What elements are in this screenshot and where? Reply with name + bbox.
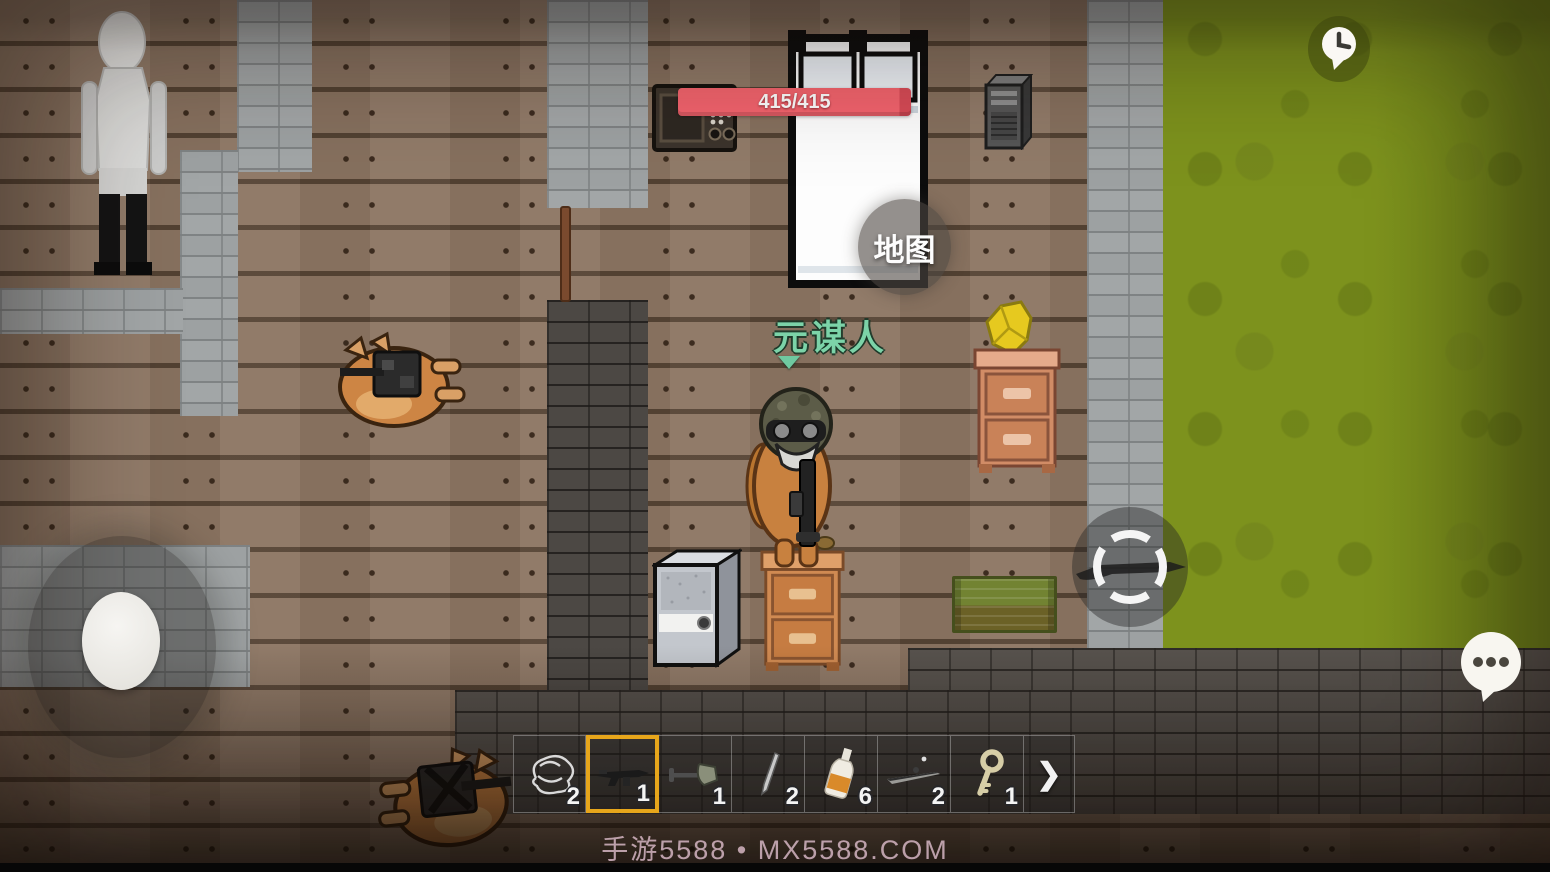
game-scene: 元谋人 415/415 地图 — [0, 0, 1550, 872]
player-name: 元谋人 — [680, 310, 980, 361]
map-button[interactable]: 地图 — [858, 199, 951, 295]
wall-left-horizontal — [0, 288, 183, 334]
ammo-crate — [952, 576, 1057, 633]
hotbar-slot-knife[interactable]: 2 — [732, 735, 805, 813]
player-character — [738, 364, 850, 569]
hotbar-expand-button[interactable]: ❯ — [1024, 735, 1075, 813]
hotbar-slot-rope-tangle[interactable]: 2 — [513, 735, 586, 813]
hotbar-slot-key[interactable]: 1 — [951, 735, 1024, 813]
item-count: 2 — [567, 783, 580, 811]
chevron-right-icon: ❯ — [1036, 757, 1061, 792]
fire-button[interactable] — [1070, 506, 1190, 628]
hotbar-slot-rifle-selected[interactable]: 1 — [586, 735, 659, 813]
chat-bubble-icon — [1459, 630, 1525, 704]
joystick-knob[interactable] — [82, 592, 160, 690]
item-count: 2 — [786, 783, 799, 811]
item-count: 1 — [637, 780, 650, 808]
wall-left-vertical — [180, 150, 238, 416]
clock-button[interactable] — [1308, 16, 1370, 82]
item-count: 2 — [932, 783, 945, 811]
safe — [652, 548, 742, 670]
hotbar-slot-shovel[interactable]: 1 — [659, 735, 732, 813]
item-count: 1 — [713, 783, 726, 811]
wall-center-top — [547, 0, 648, 208]
grass-area — [1160, 0, 1550, 660]
pc-tower — [981, 74, 1033, 150]
chat-button[interactable] — [1459, 630, 1525, 704]
door-post — [560, 206, 571, 302]
map-button-label: 地图 — [874, 225, 936, 270]
health-value: 415/415 — [758, 91, 830, 114]
hotbar: 2 1 1 2 — [513, 735, 1075, 813]
mannequin — [72, 8, 177, 276]
watermark: 手游5588 • MX5588.COM — [0, 828, 1550, 867]
clock-icon — [1319, 26, 1359, 72]
hotbar-slot-bottle[interactable]: 6 — [805, 735, 878, 813]
player-name-pointer — [778, 356, 800, 369]
item-count: 1 — [1005, 783, 1018, 811]
crosshair-icon — [1070, 506, 1190, 628]
item-count: 6 — [859, 783, 872, 811]
health-bar: 415/415 — [678, 88, 911, 116]
hotbar-slot-sniper-rifle[interactable]: 2 — [878, 735, 951, 813]
dead-dog — [322, 330, 467, 435]
wall-top-left — [237, 0, 312, 172]
dresser — [973, 348, 1061, 474]
